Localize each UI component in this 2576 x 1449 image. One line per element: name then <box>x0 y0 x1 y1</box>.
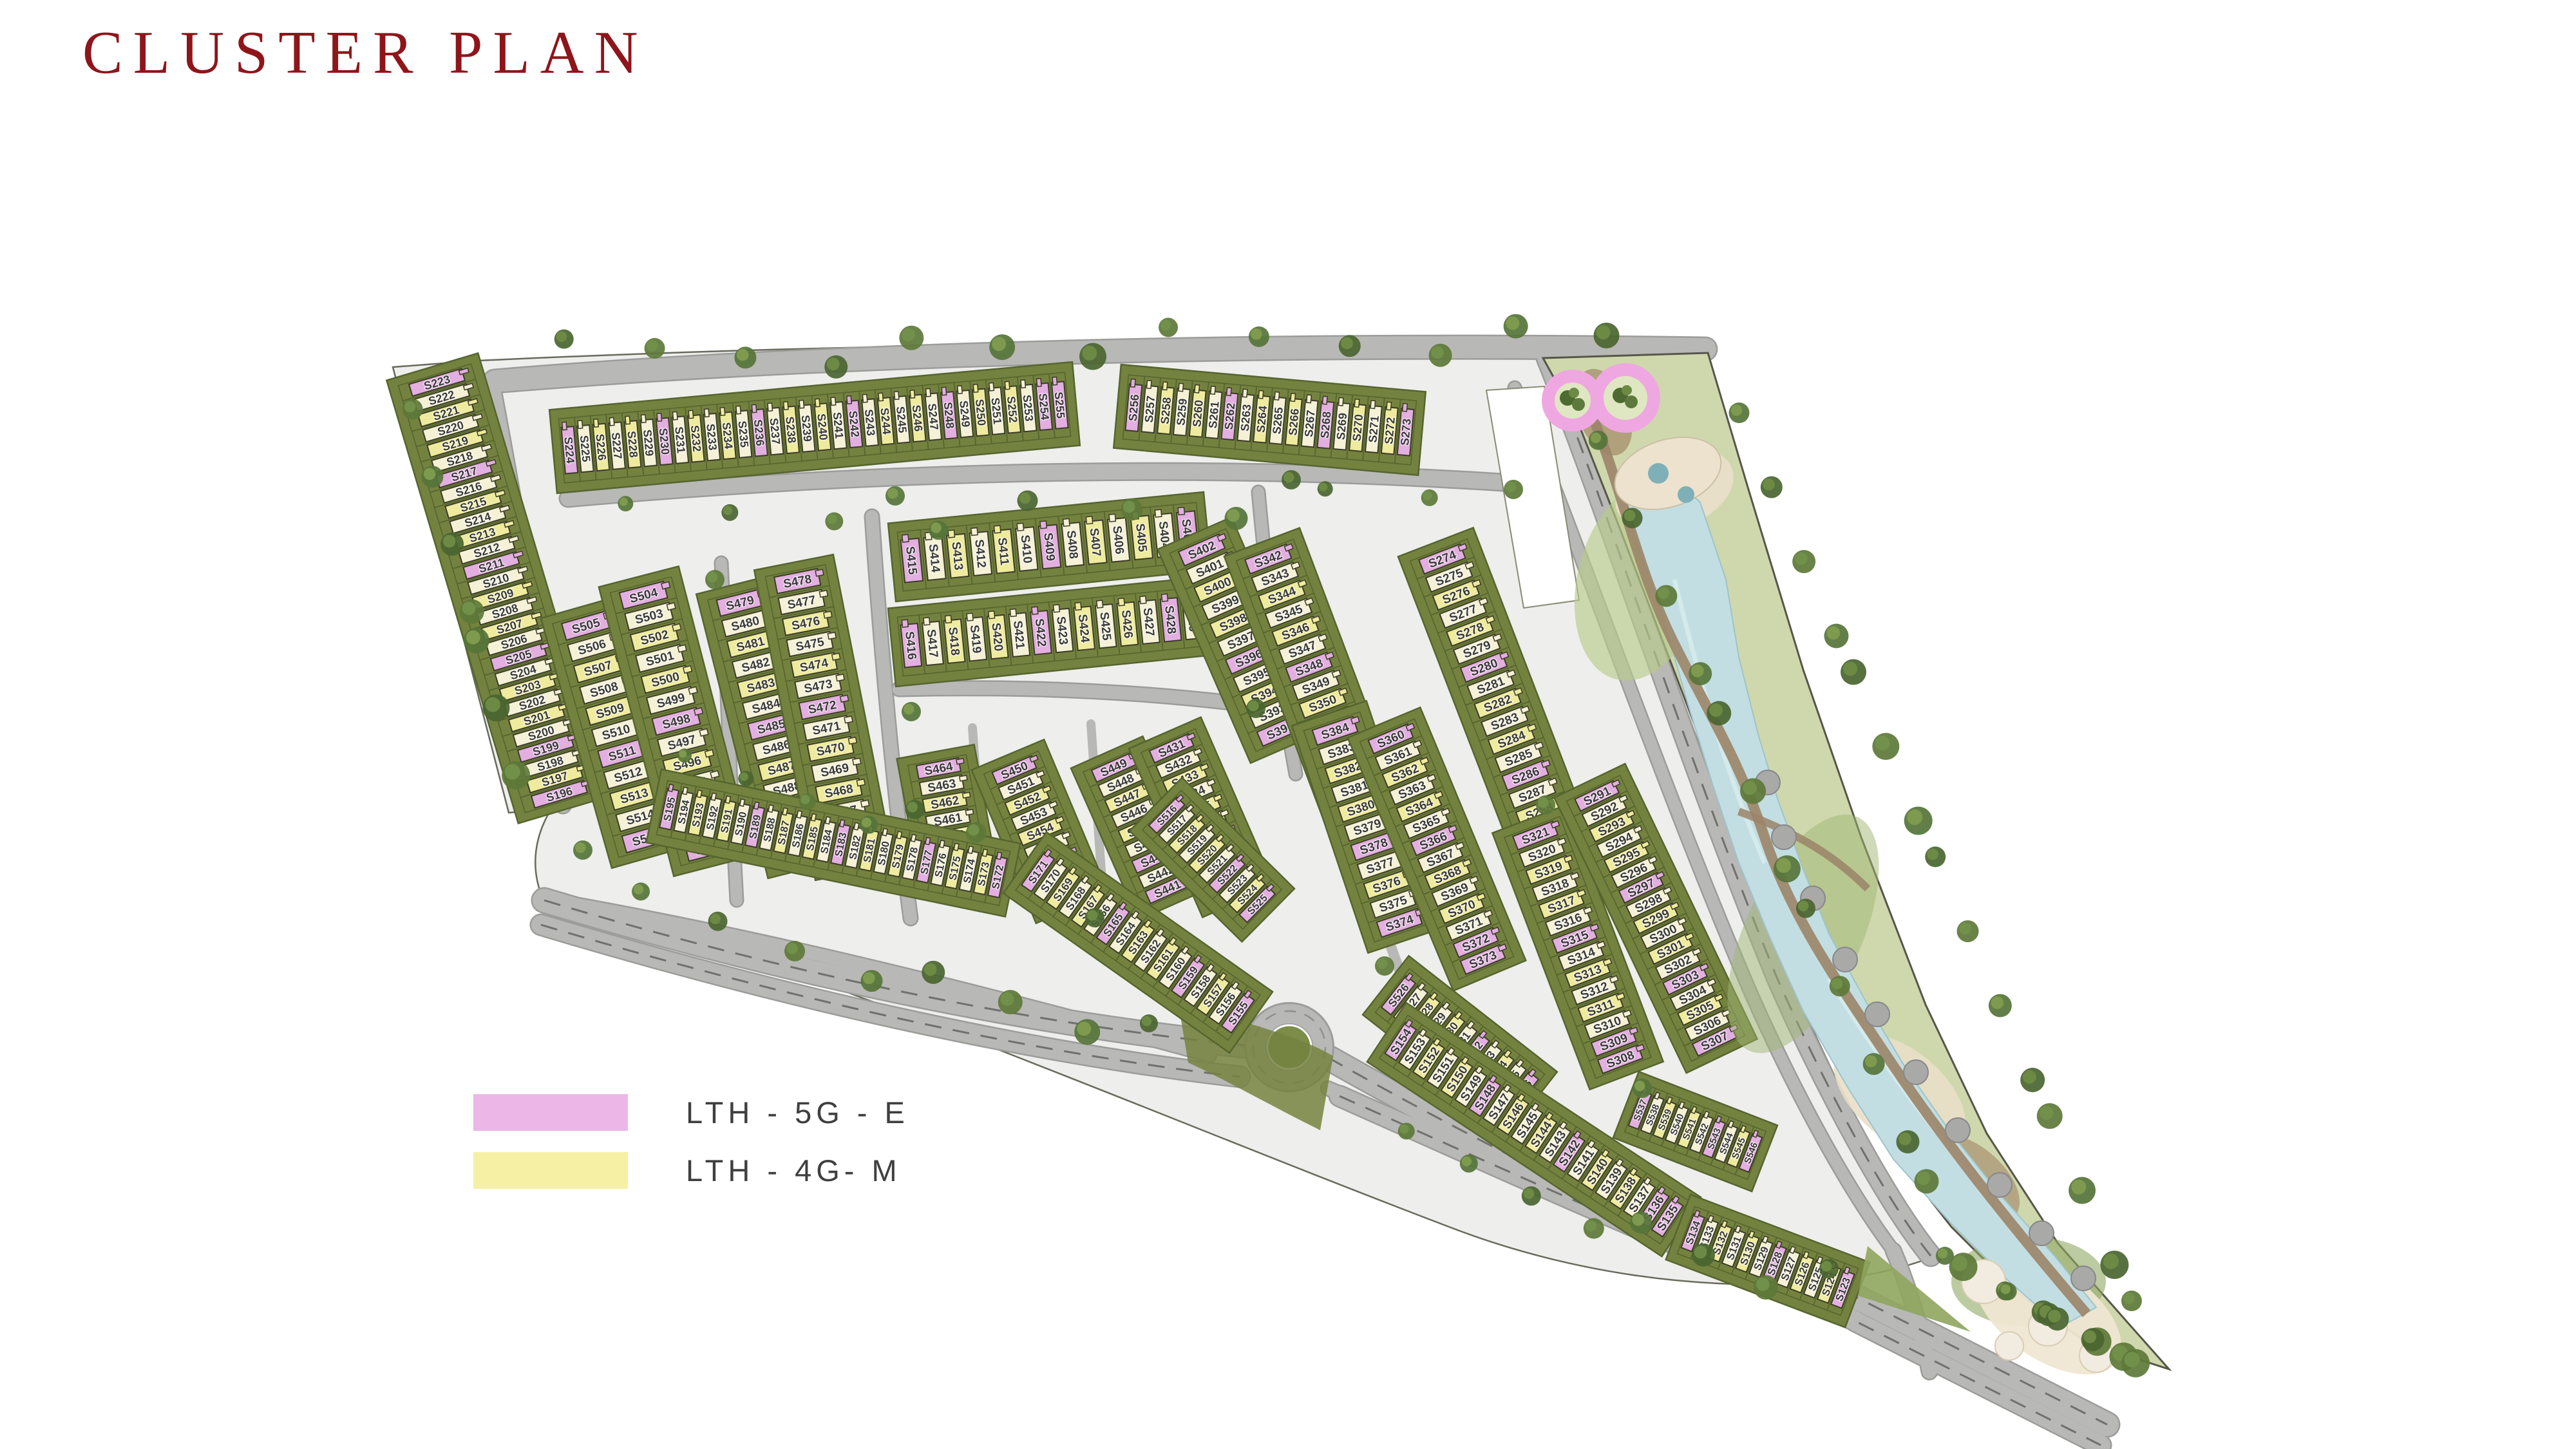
tree-icon <box>966 822 987 843</box>
tree-icon <box>784 941 805 961</box>
unit-number: S258 <box>1159 397 1174 425</box>
unit-number: S418 <box>945 627 961 656</box>
unit-number: S424 <box>1075 614 1092 644</box>
unit-number: S241 <box>831 412 846 439</box>
tree-icon <box>929 520 948 540</box>
tree-icon <box>2069 1177 2096 1204</box>
unit-number: S255 <box>1052 392 1068 419</box>
unit-number: S238 <box>783 416 799 444</box>
tree-icon <box>1999 1282 2017 1300</box>
tree-icon <box>402 399 423 420</box>
unit-number: S245 <box>894 406 909 433</box>
unit-number: S235 <box>735 421 751 448</box>
unit-number: S251 <box>989 397 1004 425</box>
tree-icon <box>1754 1275 1778 1300</box>
tree-icon <box>2020 1068 2045 1092</box>
tree-icon <box>899 326 923 350</box>
tree-icon <box>1282 470 1301 489</box>
tree-icon <box>573 840 592 860</box>
unit-number: S268 <box>1318 411 1334 439</box>
page-title: CLUSTER PLAN <box>82 18 649 88</box>
tree-icon <box>1824 624 1848 649</box>
tree-icon <box>1949 1253 1978 1281</box>
tree-icon <box>1140 1014 1158 1032</box>
unit-number: S242 <box>846 410 862 438</box>
unit-number: S416 <box>902 630 918 660</box>
unit-number: S232 <box>688 424 704 452</box>
tree-icon <box>1339 335 1361 357</box>
unit-number: S239 <box>799 415 815 442</box>
unit-number: S244 <box>878 407 893 435</box>
tree-icon <box>1074 1019 1100 1045</box>
tree-icon <box>1079 343 1106 370</box>
tree-icon <box>2121 1291 2142 1311</box>
tree-icon <box>1375 956 1394 976</box>
tree-icon <box>799 793 816 810</box>
tree-icon <box>1692 1244 1715 1267</box>
unit-number: S254 <box>1036 393 1052 421</box>
tree-icon <box>1655 585 1677 607</box>
tree-icon <box>460 600 484 624</box>
tree-icon <box>502 761 530 790</box>
tree-icon <box>645 338 665 359</box>
tree-icon <box>705 570 724 589</box>
tree-icon <box>2121 1349 2150 1378</box>
tree-icon <box>677 748 692 762</box>
unit-number: S415 <box>903 545 919 576</box>
tree-icon <box>1504 480 1523 499</box>
unit-number: S233 <box>704 423 719 451</box>
tree-icon <box>554 329 574 348</box>
tree-icon <box>1085 908 1104 927</box>
tree-icon <box>861 970 883 992</box>
tree-icon <box>1318 481 1333 497</box>
unit-number: S262 <box>1222 402 1238 431</box>
tree-icon <box>1504 314 1528 339</box>
tree-icon <box>824 355 848 379</box>
tree-icon <box>482 694 509 721</box>
tree-icon <box>885 486 905 506</box>
unit-number: S226 <box>593 433 609 461</box>
tree-icon <box>421 466 443 488</box>
unit-number: S405 <box>1133 523 1149 553</box>
unit-number: S269 <box>1334 412 1350 440</box>
unit-number: S272 <box>1382 417 1397 445</box>
tree-icon <box>1957 920 1979 942</box>
unit-number: S428 <box>1162 605 1178 634</box>
tree-icon <box>1914 1169 1938 1193</box>
unit-number: S231 <box>672 426 688 454</box>
unit-number: S420 <box>989 622 1005 652</box>
unit-number: S414 <box>926 544 942 574</box>
tree-icon <box>860 816 878 834</box>
tree-icon <box>1904 807 1933 835</box>
tree-icon <box>2081 1328 2105 1351</box>
unit-number: S249 <box>957 400 972 428</box>
unit-number: S247 <box>925 403 941 431</box>
unit-number: S423 <box>1054 616 1070 645</box>
tree-icon <box>1707 701 1731 726</box>
legend-swatch-pink-icon <box>473 1094 628 1131</box>
tree-icon <box>1249 327 1269 347</box>
tree-icon <box>1589 431 1608 450</box>
unit-number: S422 <box>1032 618 1048 647</box>
tree-icon <box>998 990 1023 1014</box>
unit-number: S248 <box>942 401 957 429</box>
unit-number: S259 <box>1174 398 1189 426</box>
tree-icon <box>989 334 1015 360</box>
tree-icon <box>734 346 756 368</box>
tree-icon <box>1689 662 1712 685</box>
tree-icon <box>1740 778 1766 804</box>
unit-number: S407 <box>1087 527 1103 557</box>
unit-number: S406 <box>1110 525 1126 554</box>
tree-icon <box>1819 1259 1839 1278</box>
tree-icon <box>1429 344 1452 367</box>
tree-icon <box>2046 1307 2069 1331</box>
unit-number: S243 <box>862 409 878 437</box>
tree-icon <box>440 533 464 556</box>
tree-icon <box>2037 1103 2063 1129</box>
tree-icon <box>1792 550 1815 573</box>
tree-icon <box>1796 899 1815 918</box>
legend-label-5g-e: LTH - 5G - E <box>686 1095 909 1130</box>
unit-number: S265 <box>1270 406 1285 435</box>
tree-icon <box>1421 489 1438 506</box>
tree-icon <box>1728 402 1749 423</box>
tree-icon <box>738 771 753 786</box>
legend-label-4g-m: LTH - 4G- M <box>686 1153 902 1188</box>
tree-icon <box>1774 855 1801 882</box>
unit-number: S253 <box>1021 394 1036 422</box>
unit-number: S252 <box>1005 395 1020 423</box>
tree-icon <box>708 912 728 931</box>
tree-icon <box>1841 659 1866 685</box>
tree-icon <box>1225 507 1248 530</box>
unit-number: S417 <box>924 629 940 658</box>
unit-number: S237 <box>768 417 783 445</box>
unit-number: S228 <box>625 430 640 458</box>
unit-number: S260 <box>1190 399 1206 428</box>
tree-icon <box>1018 491 1038 511</box>
tree-icon <box>1863 1053 1885 1075</box>
tree-icon <box>1398 1122 1415 1139</box>
unit-number: S227 <box>609 432 625 460</box>
tree-icon <box>464 628 489 654</box>
tree-icon <box>1989 994 2012 1018</box>
tree-icon <box>618 496 633 511</box>
unit-number: S409 <box>1041 532 1057 562</box>
tree-icon <box>2100 1251 2128 1279</box>
tree-icon <box>1761 477 1783 498</box>
unit-number: S264 <box>1255 405 1270 433</box>
tree-icon <box>1872 733 1899 760</box>
unit-number: S267 <box>1302 410 1318 438</box>
master-plan-map: S223S222S221S220S219S218S217S216S215S214… <box>0 0 2576 1449</box>
unit-number: S224 <box>562 436 577 464</box>
unit-number: S411 <box>995 537 1011 567</box>
tree-icon <box>1830 976 1850 996</box>
unit-number: S419 <box>967 624 983 654</box>
unit-number: S225 <box>578 435 593 462</box>
tree-icon <box>1246 699 1265 718</box>
tree-icon <box>1622 508 1643 529</box>
unit-number: S408 <box>1064 529 1080 559</box>
unit-number: S250 <box>973 399 989 426</box>
unit-number: S236 <box>752 419 767 446</box>
unit-number: S410 <box>1018 534 1034 563</box>
tree-icon <box>632 882 650 900</box>
tree-icon <box>1460 1155 1478 1173</box>
unit-number: S270 <box>1350 413 1366 442</box>
tree-icon <box>1593 323 1619 348</box>
unit-number: S256 <box>1126 393 1142 422</box>
unit-number: S426 <box>1119 609 1135 639</box>
tree-icon <box>1536 795 1555 815</box>
unit-number: S234 <box>720 422 735 450</box>
map-svg: S223S222S221S220S219S218S217S216S215S214… <box>0 0 2576 1449</box>
unit-number: S240 <box>815 413 830 440</box>
tree-icon <box>1630 1211 1652 1233</box>
unit-number: S246 <box>910 404 925 432</box>
unit-number: S263 <box>1238 404 1254 432</box>
legend-row-4g-m: LTH - 4G- M <box>473 1151 909 1189</box>
cluster-plan-page: S223S222S221S220S219S218S217S216S215S214… <box>0 0 2576 1449</box>
unit-number: S230 <box>657 428 672 455</box>
unit-number: S421 <box>1010 620 1027 650</box>
tree-icon <box>1925 847 1946 867</box>
unit-number: S427 <box>1141 607 1157 637</box>
unit-number: S261 <box>1206 401 1222 429</box>
unit-number: S257 <box>1142 395 1158 423</box>
tree-icon <box>1159 317 1178 337</box>
tree-icon <box>905 800 925 819</box>
unit-number: S413 <box>949 541 965 571</box>
unit-number: S266 <box>1286 408 1302 436</box>
unit-number: S229 <box>641 429 656 457</box>
tree-icon <box>1896 1130 1919 1153</box>
tree-icon <box>1522 1186 1541 1206</box>
legend-swatch-yellow-icon <box>473 1152 628 1189</box>
tree-icon <box>721 504 738 521</box>
tree-icon <box>825 513 843 531</box>
unit-number: S412 <box>972 539 988 569</box>
unit-number: S271 <box>1366 415 1381 444</box>
tree-icon <box>1121 498 1143 520</box>
legend-row-5g-e: LTH - 5G - E <box>473 1094 909 1131</box>
tree-icon <box>1584 1218 1604 1239</box>
tree-icon <box>922 961 945 984</box>
tree-icon <box>1633 1079 1652 1098</box>
legend: LTH - 5G - E LTH - 4G- M <box>473 1094 909 1209</box>
tree-icon <box>902 702 921 721</box>
unit-number: S425 <box>1097 611 1113 641</box>
unit-number: S273 <box>1398 418 1414 446</box>
